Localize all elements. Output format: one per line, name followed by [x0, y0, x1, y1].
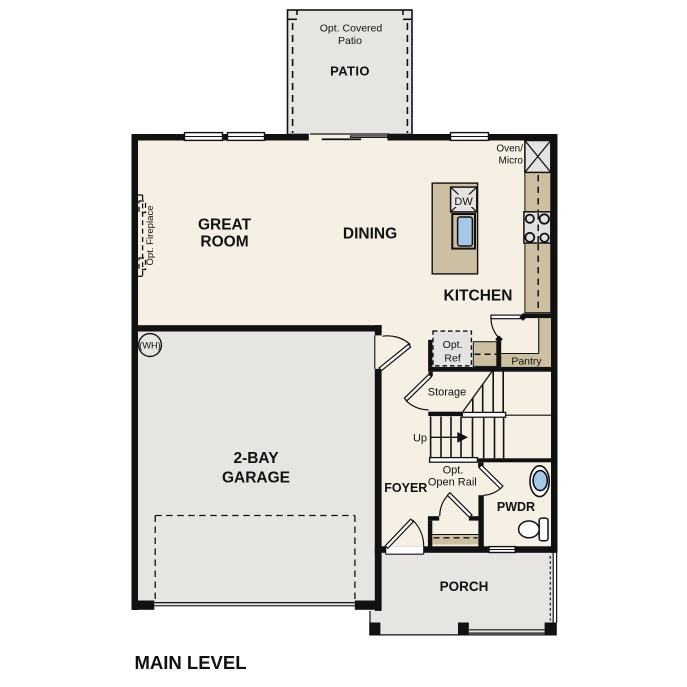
svg-text:PWDR: PWDR: [497, 500, 535, 514]
svg-text:Open Rail: Open Rail: [428, 477, 477, 489]
svg-text:PORCH: PORCH: [440, 579, 489, 594]
svg-text:ROOM: ROOM: [200, 234, 248, 251]
svg-text:FOYER: FOYER: [384, 481, 427, 495]
svg-text:(WH): (WH): [139, 340, 160, 350]
svg-text:Pantry: Pantry: [511, 356, 542, 368]
svg-text:Opt. Covered: Opt. Covered: [320, 23, 383, 35]
svg-text:Oven/: Oven/: [496, 143, 523, 154]
svg-text:Patio: Patio: [338, 35, 362, 47]
svg-text:Opt. Fireplace: Opt. Fireplace: [145, 205, 156, 265]
svg-text:PATIO: PATIO: [330, 64, 370, 79]
svg-text:KITCHEN: KITCHEN: [444, 288, 513, 305]
svg-text:MAIN LEVEL: MAIN LEVEL: [135, 652, 247, 673]
svg-text:2-BAY: 2-BAY: [233, 450, 279, 467]
svg-text:GARAGE: GARAGE: [222, 470, 290, 487]
svg-text:DW: DW: [454, 196, 473, 208]
svg-text:Storage: Storage: [428, 387, 467, 399]
svg-text:Up: Up: [413, 433, 427, 445]
svg-text:Opt.: Opt.: [443, 465, 464, 477]
svg-text:Ref: Ref: [444, 353, 460, 365]
svg-text:Micro: Micro: [499, 155, 524, 166]
svg-text:Opt.: Opt.: [443, 339, 463, 351]
svg-text:DINING: DINING: [343, 226, 397, 243]
svg-text:GREAT: GREAT: [198, 217, 252, 234]
